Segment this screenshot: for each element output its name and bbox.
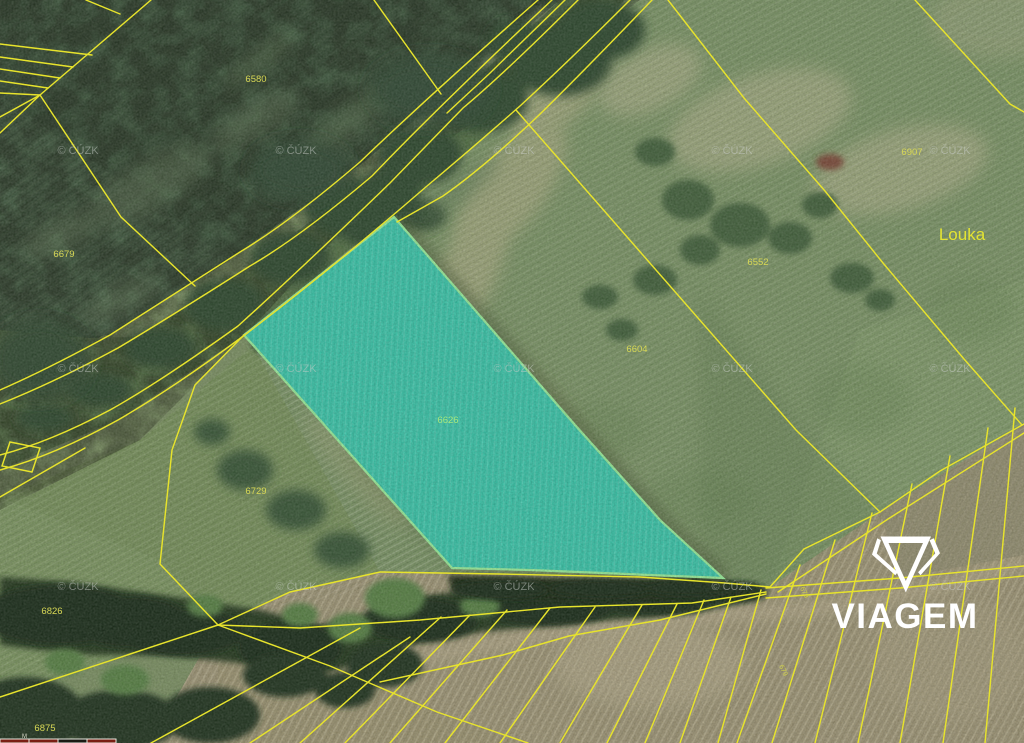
svg-text:© ČÚZK: © ČÚZK [493,580,535,593]
svg-text:6679: 6679 [53,249,74,260]
svg-text:6875: 6875 [34,723,55,734]
svg-text:© ČÚZK: © ČÚZK [929,144,971,157]
svg-text:© ČÚZK: © ČÚZK [929,362,971,375]
svg-text:© ČÚZK: © ČÚZK [493,362,535,375]
svg-text:© ČÚZK: © ČÚZK [57,144,99,157]
svg-text:© ČÚZK: © ČÚZK [493,144,535,157]
svg-text:6729: 6729 [245,486,266,497]
svg-text:6907: 6907 [901,147,922,158]
svg-text:6580: 6580 [245,74,266,85]
svg-text:6552: 6552 [747,257,768,268]
svg-text:© ČÚZK: © ČÚZK [57,580,99,593]
svg-text:6626: 6626 [437,415,458,426]
svg-text:© ČÚZK: © ČÚZK [57,362,99,375]
svg-text:© ČÚZK: © ČÚZK [711,362,753,375]
svg-text:© ČÚZK: © ČÚZK [711,144,753,157]
svg-text:© ČÚZK: © ČÚZK [275,144,317,157]
svg-text:6604: 6604 [626,344,647,355]
svg-text:© ČÚZK: © ČÚZK [275,362,317,375]
svg-text:© ČÚZK: © ČÚZK [275,580,317,593]
svg-text:VIAGEM: VIAGEM [831,597,978,636]
svg-text:Louka: Louka [939,225,986,244]
svg-text:© ČÚZK: © ČÚZK [711,580,753,593]
svg-text:M: M [22,734,27,740]
svg-text:6826: 6826 [41,606,62,617]
svg-text:© ČÚZK: © ČÚZK [929,580,971,593]
